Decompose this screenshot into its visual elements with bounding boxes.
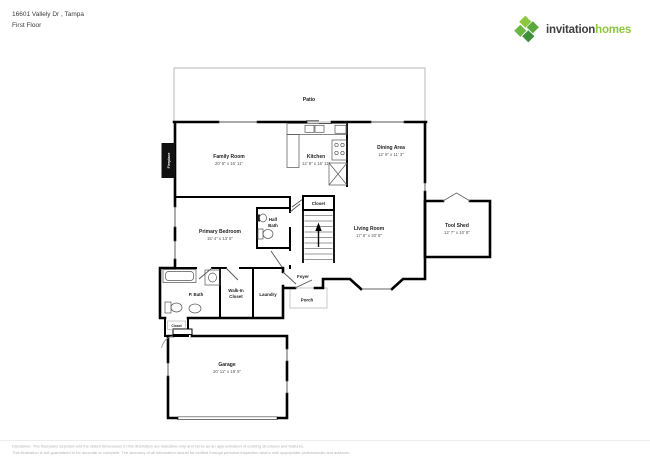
room-label-living-room: Living Room	[354, 226, 385, 232]
room-label-foyer: Foyer	[297, 274, 309, 279]
room-label-half-bath-1: Half	[269, 217, 278, 222]
room-label-family-room: Family Room	[213, 154, 245, 160]
walls-garage	[168, 336, 287, 418]
footer-divider	[0, 440, 650, 441]
disclaimer: Disclaimer: The floorplans depicted and …	[12, 443, 650, 456]
room-dims-living-room: 17' 5" x 20' 8"	[356, 233, 382, 238]
patio-outline	[174, 68, 425, 122]
room-label-p-bath: P. Bath	[189, 292, 204, 297]
room-label-laundry: Laundry	[259, 292, 277, 297]
room-dims-kitchen: 12' 9" x 16' 11"	[302, 161, 330, 166]
room-label-closet-upper: Closet	[312, 201, 326, 206]
room-dims-tool-shed: 12' 7" x 10' 8"	[444, 230, 470, 235]
room-label-half-bath-2: Bath	[268, 223, 278, 228]
walls-tool-shed	[425, 201, 490, 257]
room-dims-family-room: 20' 6" x 16' 11"	[215, 161, 243, 166]
room-dims-dining-area: 12' 6" x 11' 3"	[378, 152, 404, 157]
disclaimer-line-2: This illustration is not guaranteed to b…	[12, 450, 650, 457]
room-label-tool-shed: Tool Shed	[445, 223, 469, 229]
room-dims-garage: 20' 11" x 19' 5"	[213, 369, 241, 374]
room-dims-primary-bedroom: 15' 4" x 13' 5"	[207, 236, 233, 241]
tool-shed-door	[443, 193, 470, 201]
room-label-walk-in-closet-1: Walk-In	[228, 288, 244, 293]
room-label-porch: Porch	[301, 298, 314, 303]
room-label-kitchen: Kitchen	[307, 154, 325, 160]
room-label-fireplace: Fireplace	[167, 153, 171, 169]
garage-door	[177, 417, 278, 420]
garage-entry-door-leaf	[173, 329, 192, 335]
floorplan-drawing: Fireplace	[0, 0, 650, 460]
room-label-garage: Garage	[218, 362, 235, 368]
windows	[168, 122, 425, 394]
room-label-walk-in-closet-2: Closet	[229, 294, 243, 299]
room-label-closet-lower: Closet	[171, 324, 182, 328]
room-label-dining-area: Dining Area	[377, 145, 405, 151]
room-label-primary-bedroom: Primary Bedroom	[199, 229, 242, 235]
room-label-patio: Patio	[303, 97, 315, 103]
floorplan-page: 16601 Vallely Dr , Tampa First Floor inv…	[0, 0, 650, 460]
